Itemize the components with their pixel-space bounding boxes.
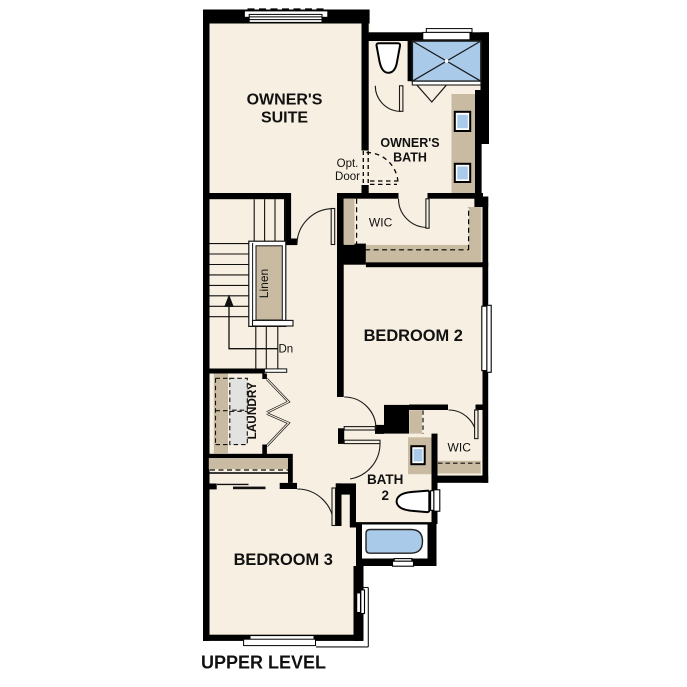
svg-text:Door: Door [335,171,360,183]
svg-text:SUITE: SUITE [261,110,308,127]
svg-text:Opt.: Opt. [337,158,359,170]
svg-text:WIC: WIC [369,216,393,230]
svg-text:Dn: Dn [279,343,294,355]
svg-text:BEDROOM 2: BEDROOM 2 [364,327,463,345]
svg-text:BEDROOM 3: BEDROOM 3 [234,551,333,569]
svg-text:UPPER LEVEL: UPPER LEVEL [201,653,326,673]
svg-text:OWNER'S: OWNER'S [247,92,323,109]
svg-text:2: 2 [381,488,389,503]
svg-text:BATH: BATH [393,151,427,165]
svg-text:Linen: Linen [257,269,271,298]
svg-text:WIC: WIC [448,440,472,454]
svg-text:OWNER'S: OWNER'S [380,136,439,150]
svg-text:BATH: BATH [367,472,404,487]
svg-text:LAUNDRY: LAUNDRY [245,382,259,439]
